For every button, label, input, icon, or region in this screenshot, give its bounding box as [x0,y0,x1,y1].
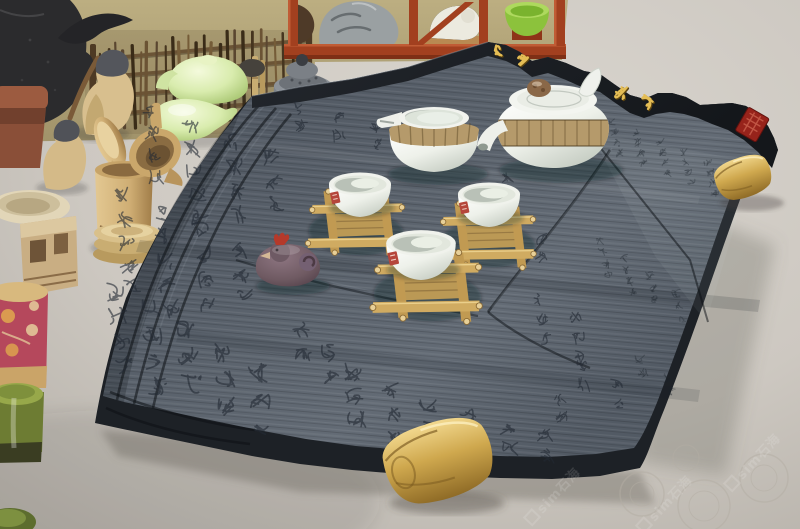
pink-floral-canister [0,282,48,388]
green-glazed-jar [0,383,44,463]
rattan-band [497,119,609,147]
photo-scene: sim石海 sim石海 sim石海 [0,0,800,529]
tea-cup [458,183,524,228]
tea-cup [386,230,460,280]
terracotta-pot [0,86,48,168]
tea-cup [329,173,395,218]
lid-knob [527,79,551,97]
scene-canvas [0,0,800,529]
